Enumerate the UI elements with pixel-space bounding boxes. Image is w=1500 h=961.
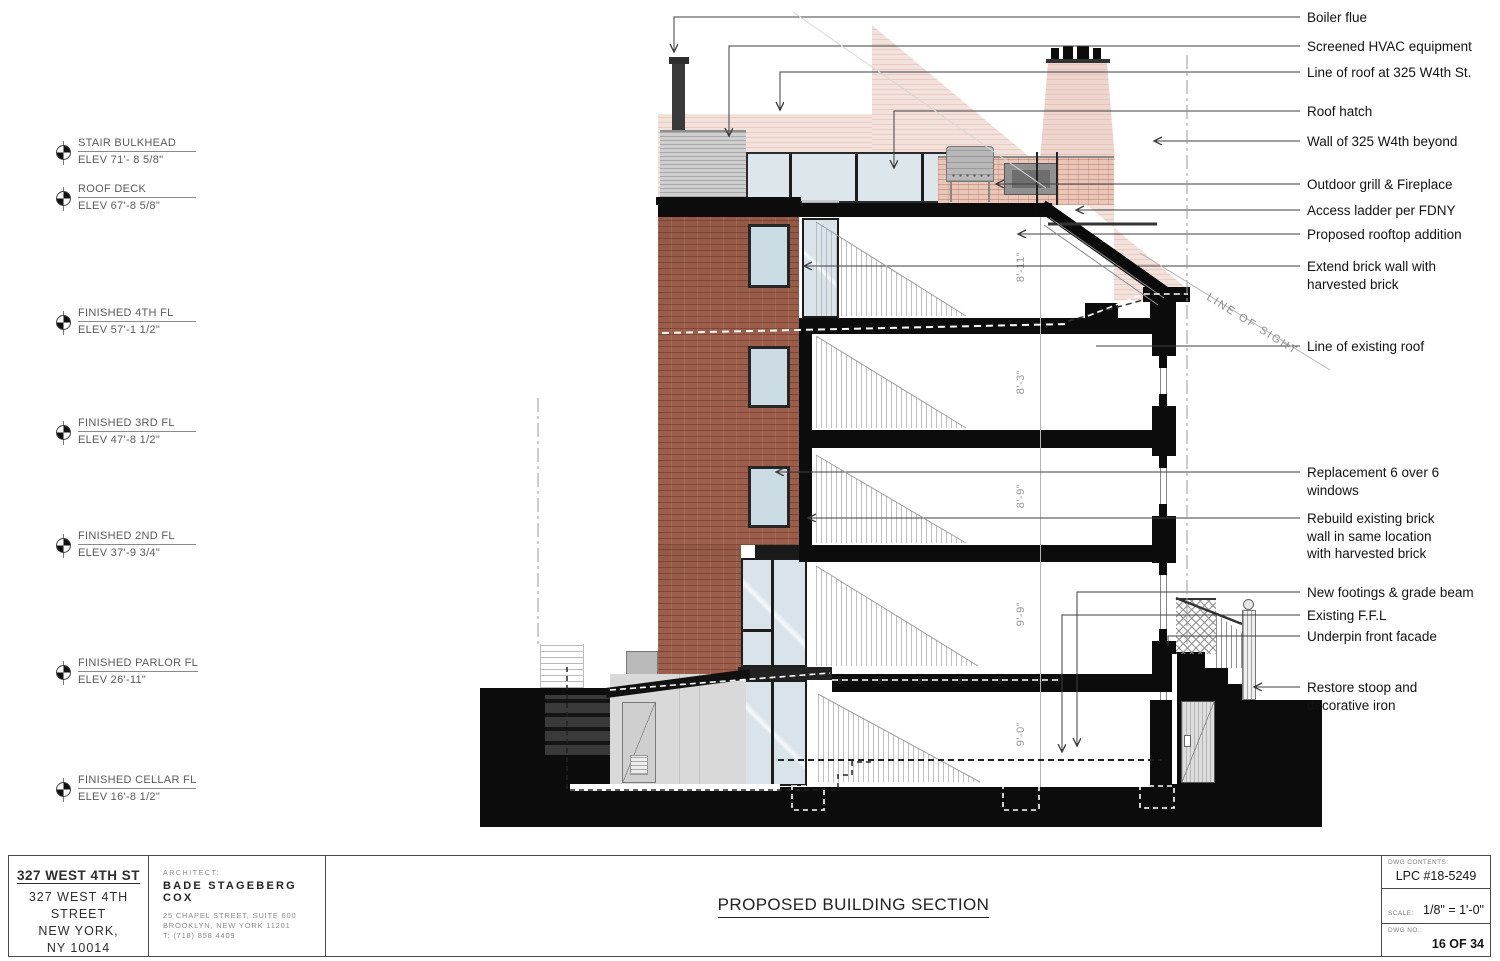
leader-hvac [729, 46, 1300, 136]
sight-line-secondary [793, 12, 1046, 188]
scale-label: SCALE: [1388, 910, 1414, 917]
leader-roofline-325 [780, 72, 1300, 110]
callout-footings: New footings & grade beam [1307, 584, 1495, 602]
elevation-name: FINISHED 2ND FL [78, 530, 196, 545]
elevation-value: ELEV 47'-8 1/2" [78, 432, 216, 447]
datum-symbol-icon [56, 782, 71, 797]
callout-existing-ffl: Existing F.F.L [1307, 607, 1495, 625]
datum-symbol-icon [56, 315, 71, 330]
dwg-no-row: DWG NO.: 16 OF 34 [1382, 924, 1490, 956]
title-block-architect: ARCHITECT: BADE STAGEBERG COX 25 CHAPEL … [149, 856, 326, 956]
elevation-value: ELEV 57'-1 1/2" [78, 322, 216, 337]
datum-symbol-icon [56, 145, 71, 160]
datum-symbol-icon [56, 538, 71, 553]
callout-rooftop-addition: Proposed rooftop addition [1307, 226, 1495, 244]
extension-roof-slab [606, 674, 750, 693]
linework-overlay: LINE OF SIGHT [0, 0, 1500, 855]
access-ladder-line [1050, 218, 1164, 298]
stringer [818, 694, 980, 782]
line-of-sight-label: LINE OF SIGHT [1204, 291, 1300, 357]
elevation-marker-roof-deck: ROOF DECK ELEV 67'-8 5/8" [56, 183, 216, 213]
leader-underpin [1168, 636, 1300, 646]
architect-phone: T: (718) 858 4409 [163, 931, 325, 941]
sheet-title: PROPOSED BUILDING SECTION [718, 895, 990, 918]
elevation-value: ELEV 67'-8 5/8" [78, 198, 216, 213]
footing-dashed [1003, 786, 1039, 810]
callout-replacement-windows: Replacement 6 over 6 windows [1307, 464, 1495, 499]
elevation-marker-cellar-fl: FINISHED CELLAR FL ELEV 16'-8 1/2" [56, 774, 216, 804]
elevation-marker-3rd-fl: FINISHED 3RD FL ELEV 47'-8 1/2" [56, 417, 216, 447]
scale-value: 1/8" = 1'-0" [1423, 903, 1484, 917]
datum-symbol-icon [56, 425, 71, 440]
title-block-project: 327 WEST 4TH ST 327 WEST 4TH STREET NEW … [9, 856, 149, 956]
elevation-marker-4th-fl: FINISHED 4TH FL ELEV 57'-1 1/2" [56, 307, 216, 337]
access-ladder-line [1044, 225, 1158, 305]
callout-wall-325: Wall of 325 W4th beyond [1307, 133, 1495, 151]
datum-symbol-icon [56, 191, 71, 206]
elevation-name: FINISHED PARLOR FL [78, 657, 198, 672]
elevation-name: STAIR BULKHEAD [78, 137, 196, 152]
elevation-value: ELEV 16'-8 1/2" [78, 789, 216, 804]
stringer [816, 566, 978, 666]
architect-name: BADE STAGEBERG COX [163, 880, 325, 904]
stair-stringers [816, 222, 980, 782]
callout-roofline-325: Line of roof at 325 W4th St. [1307, 64, 1495, 82]
elevation-name: FINISHED 4TH FL [78, 307, 196, 322]
stringer [816, 222, 966, 316]
elevation-name: FINISHED 3RD FL [78, 417, 196, 432]
scale-row: SCALE: 1/8" = 1'-0" [1382, 889, 1490, 925]
callout-hvac: Screened HVAC equipment [1307, 38, 1495, 56]
dwg-contents-value: LPC #18-5249 [1388, 869, 1484, 883]
title-block-sheet-title: PROPOSED BUILDING SECTION [326, 856, 1382, 956]
elevation-name: FINISHED CELLAR FL [78, 774, 196, 789]
callout-restore-stoop: Restore stoop and decorative iron [1307, 679, 1495, 714]
dashed-lines [538, 55, 1188, 810]
existing-roof-dashed [1068, 300, 1143, 321]
callout-roof-hatch: Roof hatch [1307, 103, 1495, 121]
callout-access-ladder: Access ladder per FDNY [1307, 202, 1495, 220]
leader-roof-hatch [894, 111, 1300, 168]
project-address: 327 WEST 4TH STREET NEW YORK, NY 10014 [9, 889, 148, 957]
dwg-no-label: DWG NO.: [1388, 927, 1484, 934]
cellar-outline-dashed [567, 667, 872, 790]
elevation-marker-parlor-fl: FINISHED PARLOR FL ELEV 26'-11" [56, 657, 216, 687]
drawing-sheet: 8'-11" 8'-3" 8'-9" 9'-9" 9'-0" [0, 0, 1500, 961]
architect-label: ARCHITECT: [163, 870, 325, 877]
cornice-dashed [1088, 294, 1188, 316]
elevation-value: ELEV 26'-11" [78, 672, 216, 687]
dwg-contents-label: DWG CONTENTS: [1388, 859, 1484, 866]
stringer [816, 455, 966, 543]
project-name: 327 WEST 4TH ST [9, 868, 148, 883]
callout-existing-roof: Line of existing roof [1307, 338, 1495, 356]
callout-extend-brick: Extend brick wall with harvested brick [1307, 258, 1495, 293]
elevation-marker-stair-bulkhead: STAIR BULKHEAD ELEV 71'- 8 5/8" [56, 137, 216, 167]
elevation-value: ELEV 37'-9 3/4" [78, 545, 216, 560]
elevation-marker-2nd-fl: FINISHED 2ND FL ELEV 37'-9 3/4" [56, 530, 216, 560]
sloped-roof [1042, 206, 1168, 295]
leader-lines [674, 17, 1300, 752]
stoop-handrail [1176, 598, 1242, 624]
dwg-contents-row: DWG CONTENTS: LPC #18-5249 [1382, 856, 1490, 889]
datum-symbol-icon [56, 665, 71, 680]
architect-address-2: BROOKLYN, NEW YORK 11201 [163, 921, 325, 931]
footing-dashed [1140, 786, 1174, 808]
dwg-no-value: 16 OF 34 [1388, 937, 1484, 951]
callout-grill-fireplace: Outdoor grill & Fireplace [1307, 176, 1495, 194]
callout-underpin: Underpin front facade [1307, 628, 1495, 646]
elevation-value: ELEV 71'- 8 5/8" [78, 152, 216, 167]
callout-rebuild-brick: Rebuild existing brick wall in same loca… [1307, 510, 1495, 563]
title-block-info: DWG CONTENTS: LPC #18-5249 SCALE: 1/8" =… [1382, 856, 1490, 956]
title-block: 327 WEST 4TH ST 327 WEST 4TH STREET NEW … [8, 855, 1491, 957]
leader-boiler-flue [674, 17, 1300, 52]
architect-address-1: 25 CHAPEL STREET, SUITE 600 [163, 911, 325, 921]
stringer [816, 336, 966, 428]
elevation-name: ROOF DECK [78, 183, 196, 198]
callout-boiler-flue: Boiler flue [1307, 9, 1495, 27]
existing-roof-dashed [662, 324, 1068, 333]
